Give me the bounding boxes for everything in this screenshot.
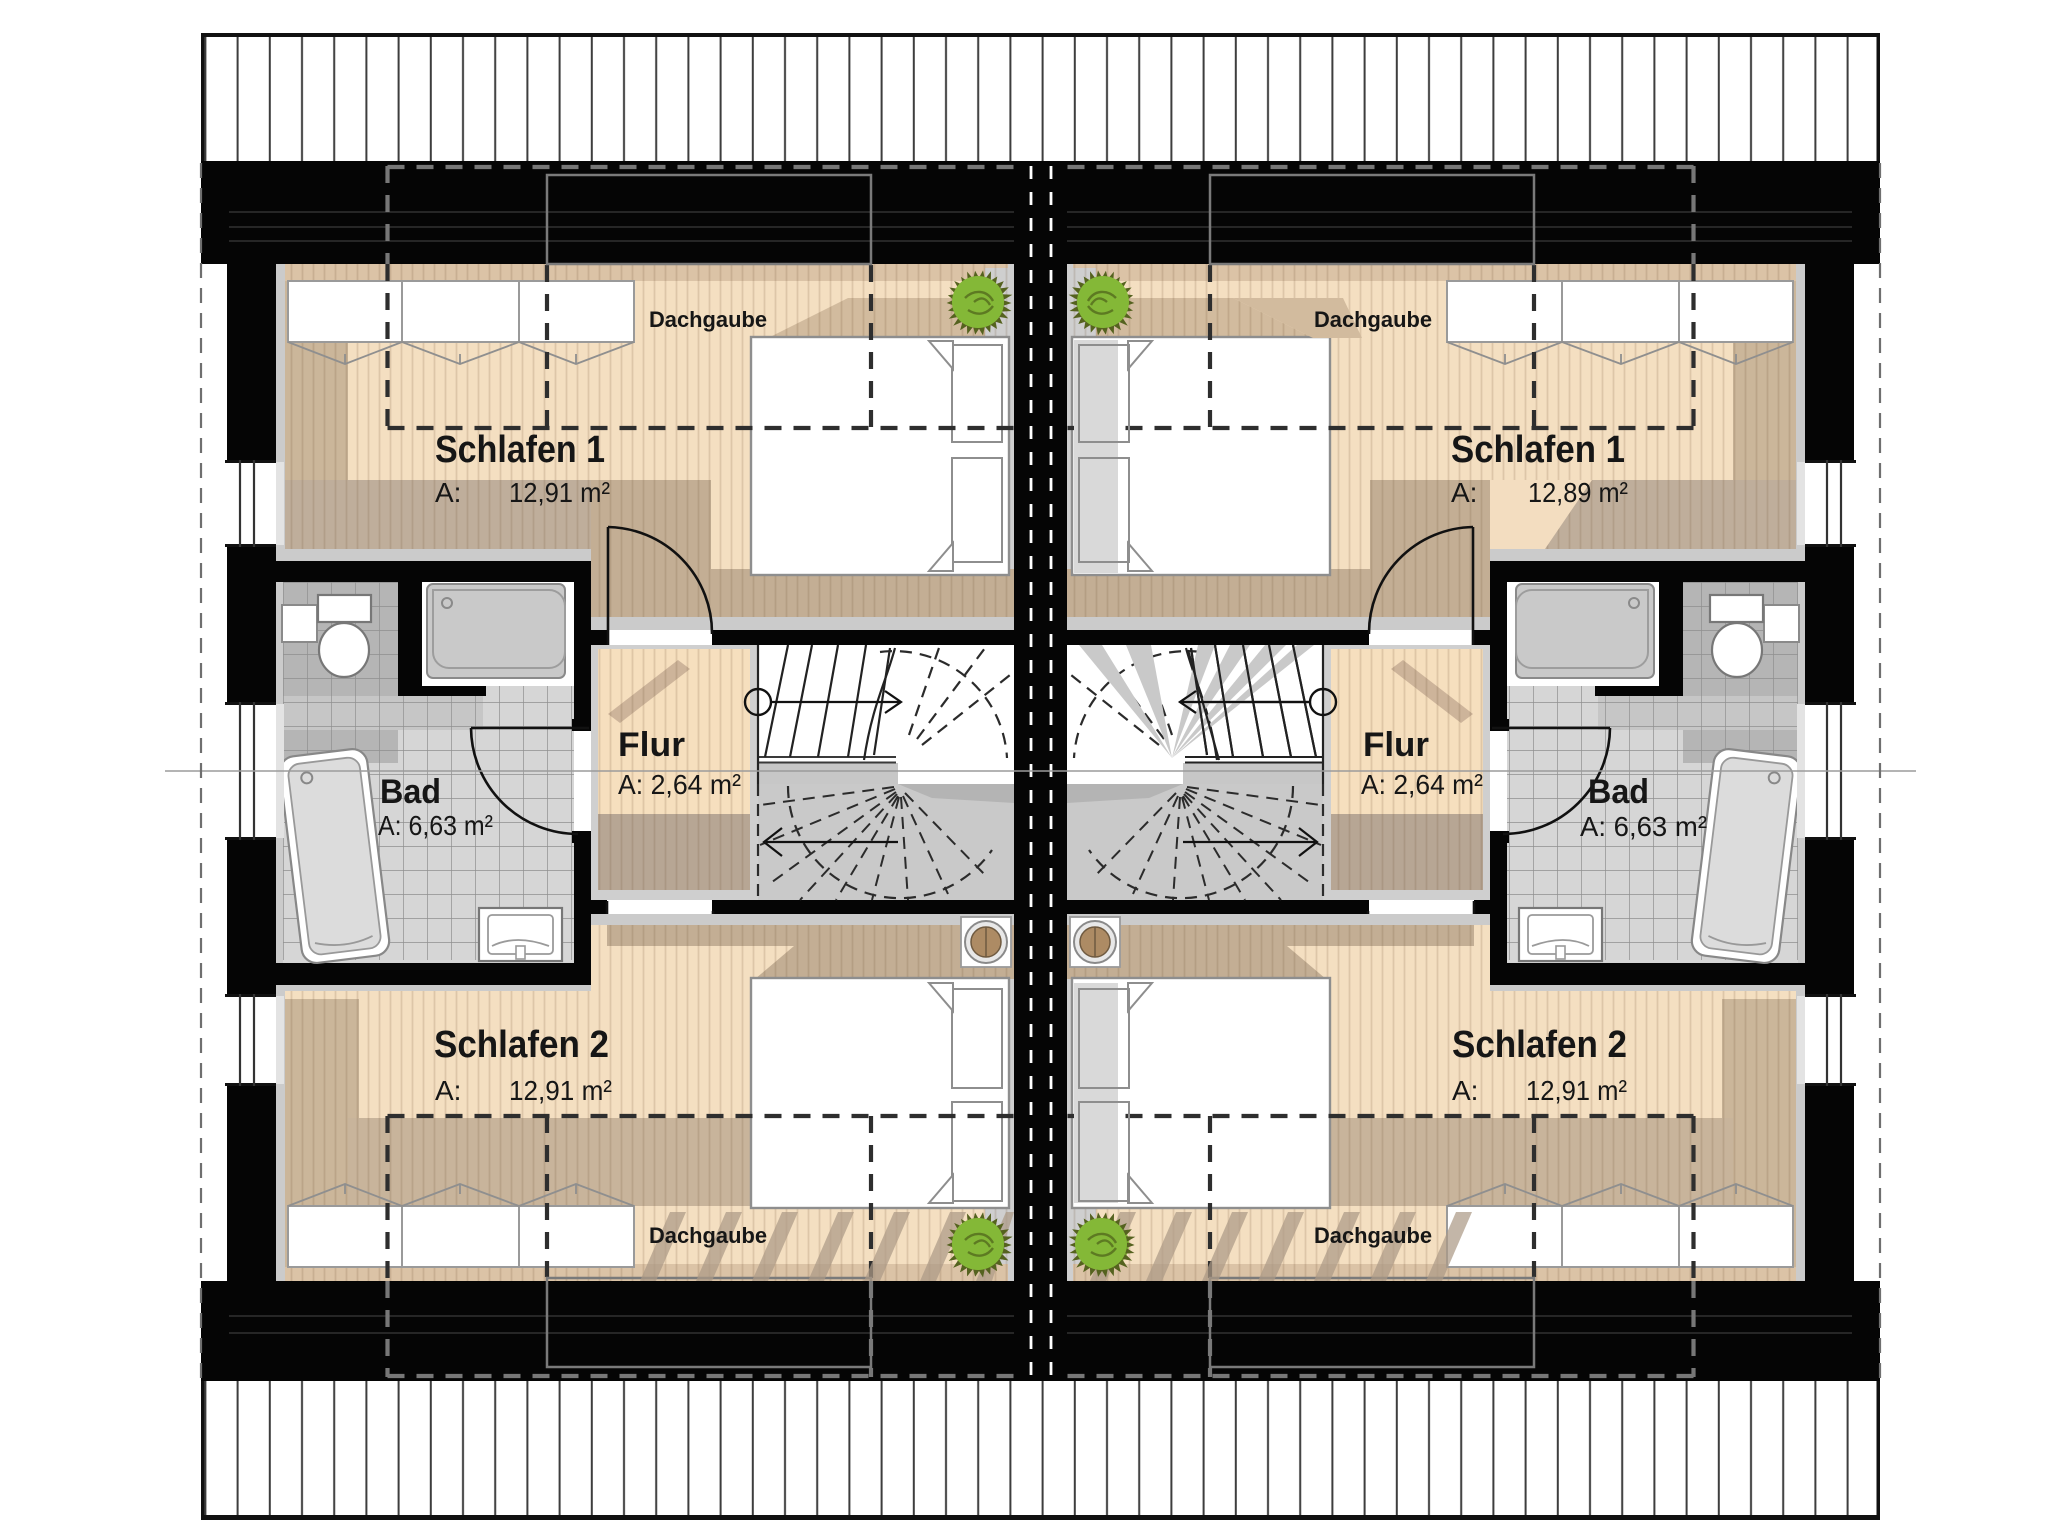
svg-text:Schlafen 1: Schlafen 1 — [1451, 429, 1625, 471]
svg-text:A: 2,64 m²: A: 2,64 m² — [618, 769, 741, 800]
svg-text:A:: A: — [1451, 477, 1477, 508]
svg-text:A: 6,63 m²: A: 6,63 m² — [1580, 811, 1707, 842]
svg-text:A:: A: — [1452, 1075, 1478, 1106]
svg-text:Bad: Bad — [1588, 773, 1649, 811]
svg-text:12,91 m²: 12,91 m² — [1526, 1075, 1627, 1106]
svg-text:12,89 m²: 12,89 m² — [1528, 477, 1628, 508]
svg-text:12,91 m²: 12,91 m² — [509, 1075, 612, 1106]
svg-text:Dachgaube: Dachgaube — [1314, 1223, 1432, 1248]
svg-text:A: 2,64 m²: A: 2,64 m² — [1361, 769, 1483, 800]
svg-text:Dachgaube: Dachgaube — [649, 307, 767, 332]
svg-text:Flur: Flur — [618, 726, 685, 764]
svg-text:Schlafen 1: Schlafen 1 — [435, 429, 605, 471]
svg-text:A:: A: — [435, 1075, 461, 1106]
svg-text:A:: A: — [435, 477, 461, 508]
svg-text:Schlafen 2: Schlafen 2 — [1452, 1024, 1627, 1066]
svg-text:Dachgaube: Dachgaube — [1314, 307, 1432, 332]
svg-text:A: 6,63 m²: A: 6,63 m² — [378, 810, 493, 841]
svg-text:Dachgaube: Dachgaube — [649, 1223, 767, 1248]
svg-text:Bad: Bad — [380, 773, 441, 811]
svg-text:Flur: Flur — [1363, 726, 1429, 764]
svg-text:Schlafen 2: Schlafen 2 — [434, 1024, 609, 1066]
svg-text:12,91 m²: 12,91 m² — [509, 477, 610, 508]
